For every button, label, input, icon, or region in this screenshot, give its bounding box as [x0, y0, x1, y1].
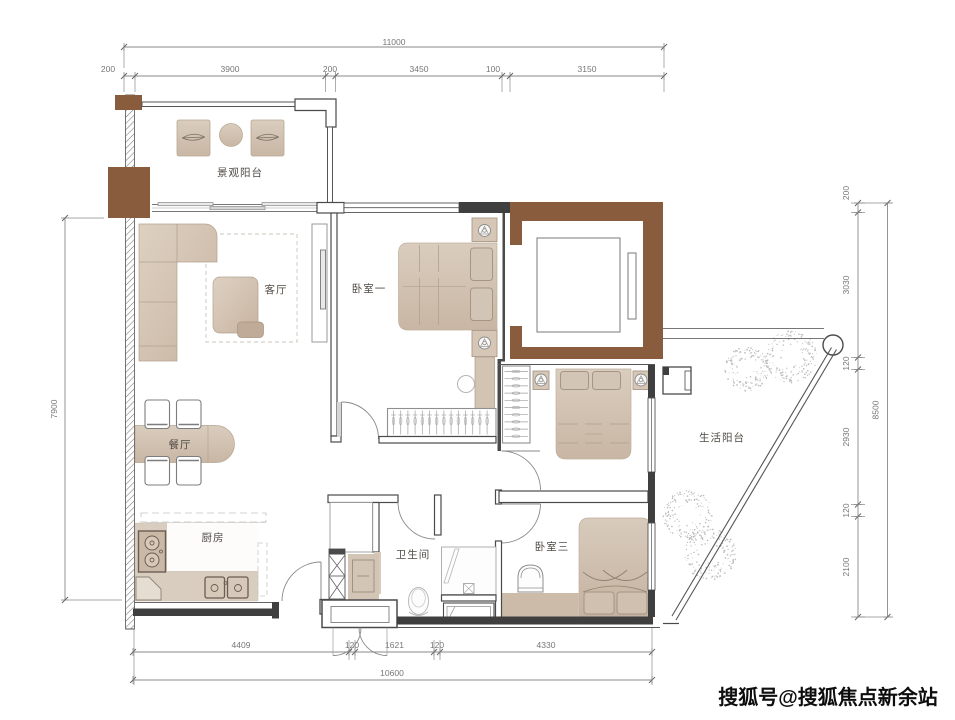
svg-text:200: 200 — [323, 64, 337, 74]
svg-text:3030: 3030 — [841, 275, 851, 294]
svg-text:120: 120 — [841, 356, 851, 370]
svg-text:4409: 4409 — [232, 640, 251, 650]
svg-text:卧室三: 卧室三 — [535, 540, 570, 553]
svg-text:200: 200 — [101, 64, 115, 74]
svg-text:2930: 2930 — [841, 427, 851, 446]
svg-text:3900: 3900 — [221, 64, 240, 74]
svg-text:3150: 3150 — [578, 64, 597, 74]
svg-text:3450: 3450 — [410, 64, 429, 74]
svg-text:生活阳台: 生活阳台 — [699, 431, 745, 444]
svg-text:10600: 10600 — [380, 668, 404, 678]
svg-text:厨房: 厨房 — [202, 531, 225, 544]
svg-text:客厅: 客厅 — [265, 283, 288, 296]
svg-text:200: 200 — [841, 186, 851, 200]
svg-text:100: 100 — [486, 64, 500, 74]
svg-text:7900: 7900 — [49, 399, 59, 418]
svg-text:120: 120 — [841, 503, 851, 517]
svg-text:卧室一: 卧室一 — [352, 282, 387, 295]
svg-text:8500: 8500 — [871, 400, 881, 419]
svg-text:4330: 4330 — [537, 640, 556, 650]
svg-text:搜狐号@搜狐焦点新余站: 搜狐号@搜狐焦点新余站 — [718, 685, 938, 709]
svg-text:卫生间: 卫生间 — [396, 548, 431, 561]
svg-text:2100: 2100 — [841, 557, 851, 576]
svg-text:1621: 1621 — [385, 640, 404, 650]
svg-text:120: 120 — [430, 640, 444, 650]
svg-text:餐厅: 餐厅 — [169, 438, 192, 451]
svg-text:景观阳台: 景观阳台 — [217, 166, 263, 179]
svg-text:11000: 11000 — [382, 37, 405, 47]
